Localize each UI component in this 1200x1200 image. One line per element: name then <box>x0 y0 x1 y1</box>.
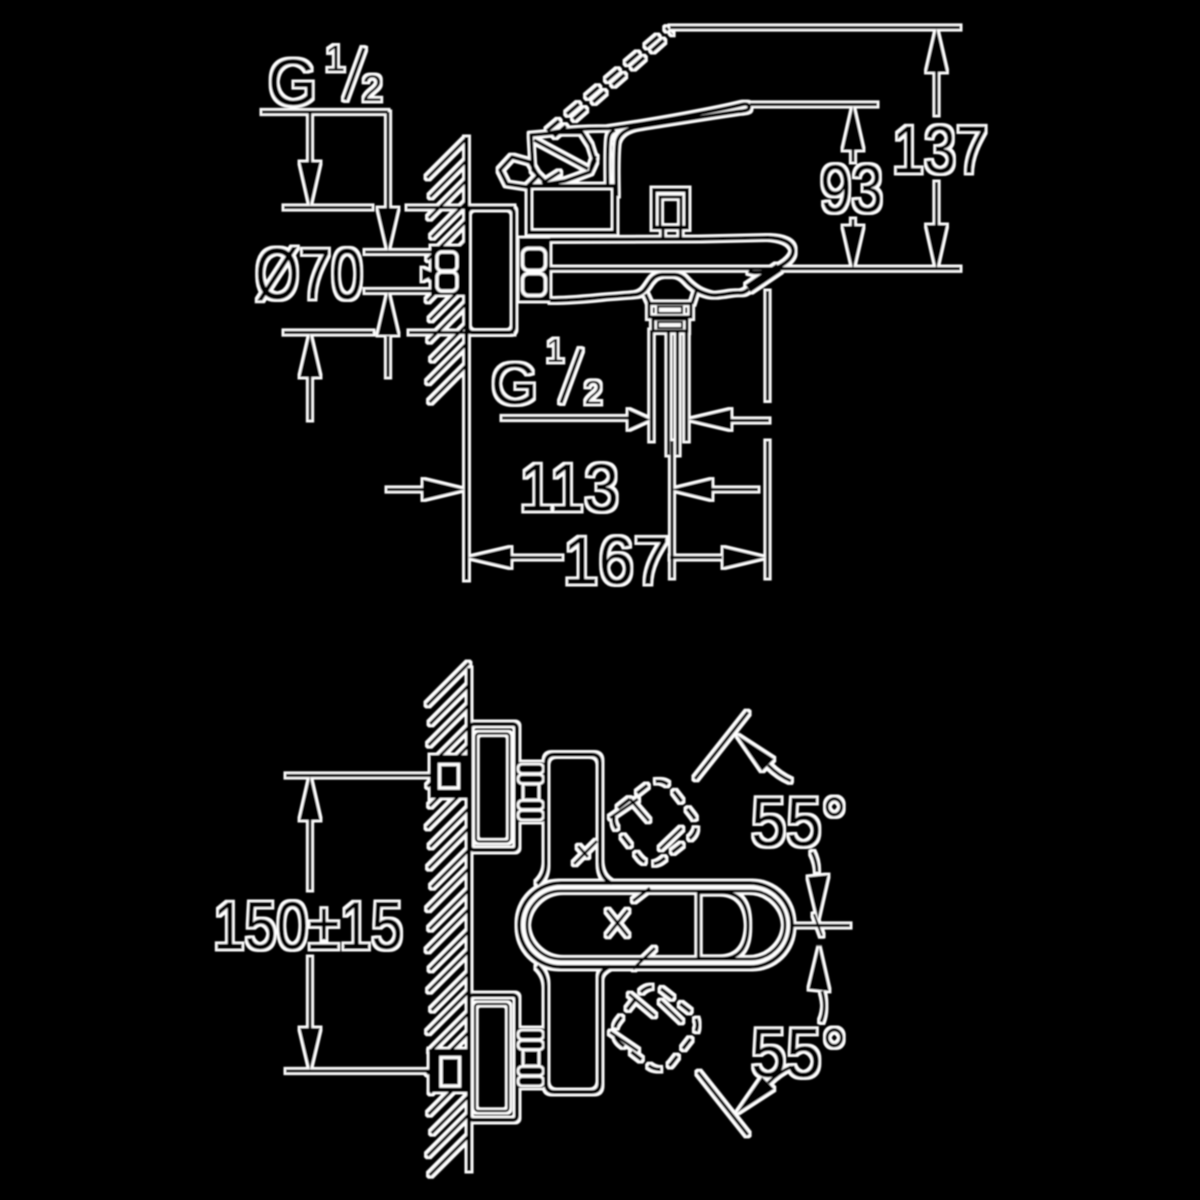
svg-text:137: 137 <box>892 112 988 188</box>
svg-text:2: 2 <box>362 68 383 109</box>
svg-text:1: 1 <box>325 38 346 79</box>
svg-text:G: G <box>268 45 317 119</box>
svg-text:167: 167 <box>563 523 669 599</box>
svg-text:G: G <box>491 352 538 417</box>
svg-text:1: 1 <box>546 332 564 369</box>
svg-text:93: 93 <box>820 151 883 227</box>
svg-text:Ø70: Ø70 <box>255 235 363 315</box>
svg-text:2: 2 <box>584 374 602 411</box>
svg-text:113: 113 <box>519 450 619 526</box>
svg-text:55°: 55° <box>751 783 847 861</box>
svg-text:150±15: 150±15 <box>213 888 403 964</box>
svg-text:55°: 55° <box>751 1014 847 1092</box>
